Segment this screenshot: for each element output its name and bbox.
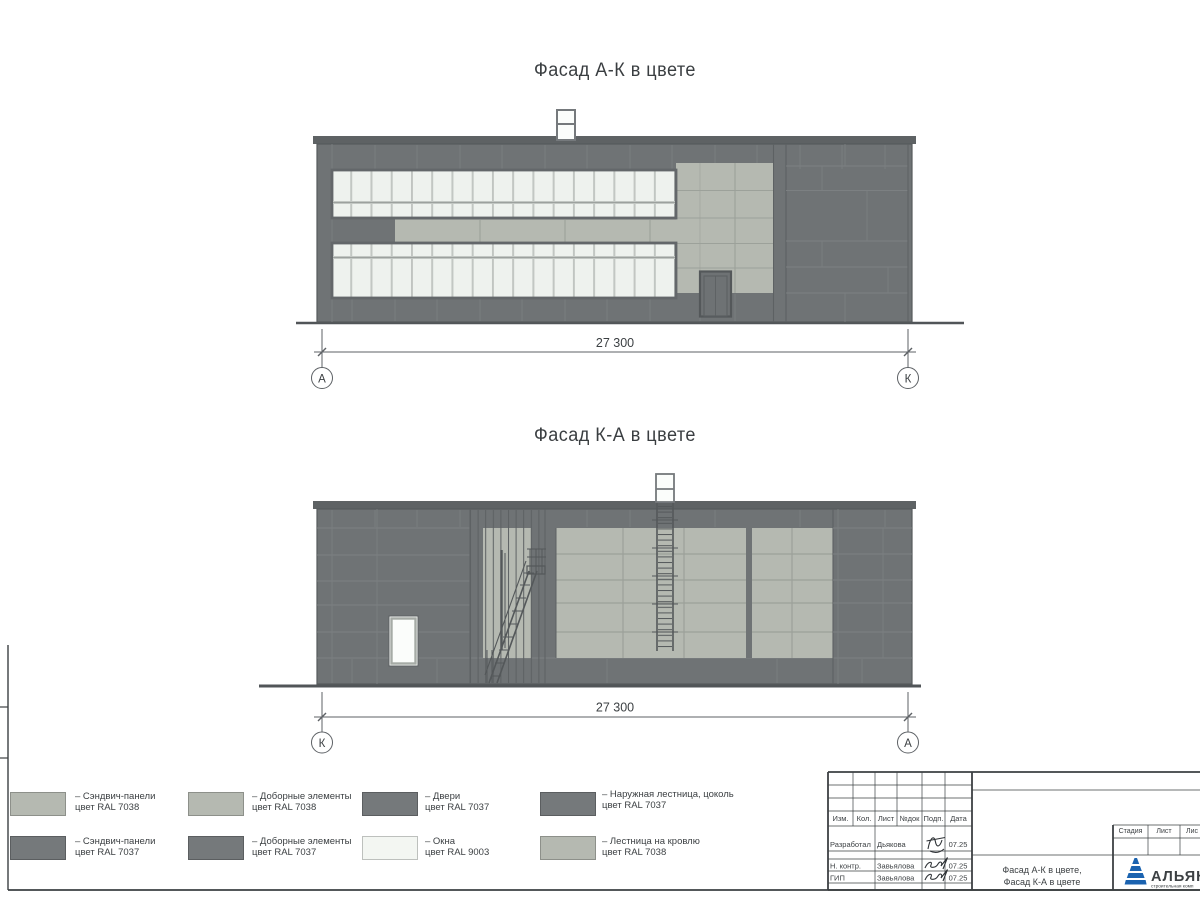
legend-swatch	[540, 792, 596, 816]
sheets-header: Лис	[1186, 828, 1199, 835]
roof-hatch	[557, 110, 575, 140]
doc-name-line2: Фасад К-А в цвете	[1004, 877, 1081, 887]
legend-label: – Сэндвич-панели цвет RAL 7037	[75, 837, 155, 858]
parapet-cap	[313, 136, 916, 144]
dimension-value: 27 300	[596, 336, 634, 350]
doc-name: Фасад А-К в цвете, Фасад К-А в цвете	[1002, 865, 1081, 887]
col-ndok: №док	[900, 814, 921, 823]
legend-line1: – Окна	[425, 837, 489, 848]
legend-line1: – Сэндвич-панели	[75, 837, 155, 848]
axis-letter-left: К	[319, 738, 326, 750]
legend-label: – Окна цвет RAL 9003	[425, 837, 489, 858]
legend-label: – Сэндвич-панели цвет RAL 7038	[75, 792, 155, 813]
row-role: Н. контр.	[830, 862, 861, 871]
logo-pyramid-icon	[1125, 858, 1147, 885]
dimension-value: 27 300	[596, 701, 634, 715]
drawing-sheet: Фасад А-К в цвете	[0, 0, 1200, 900]
legend-swatch	[188, 792, 244, 816]
axis-letter-left: А	[318, 374, 326, 386]
parapet-cap	[313, 501, 916, 509]
legend-line1: – Двери	[425, 792, 489, 803]
small-window	[389, 616, 418, 666]
legend-swatch	[362, 792, 418, 816]
legend-line2: цвет RAL 7037	[252, 848, 351, 859]
legend-label: – Лестница на кровлю цвет RAL 7038	[602, 837, 700, 858]
facade-ak-title: Фасад А-К в цвете	[378, 60, 853, 82]
row-date: 07.25	[949, 862, 968, 871]
light-trim-stripe	[395, 220, 676, 243]
facade-ka-drawing: 27 300 К А	[240, 450, 980, 760]
axis-letter-right: К	[905, 374, 912, 386]
legend-line2: цвет RAL 9003	[425, 848, 489, 859]
row-role: ГИП	[830, 874, 845, 883]
sheet-header: Лист	[1156, 828, 1172, 835]
row-name: Дьякова	[877, 840, 906, 849]
legend-line2: цвет RAL 7038	[602, 848, 700, 859]
legend-line1: – Доборные элементы	[252, 837, 351, 848]
legend-swatch	[10, 792, 66, 816]
company-name: АЛЬЯНС	[1151, 869, 1200, 885]
lower-window-band	[332, 243, 676, 298]
legend-line1: – Доборные элементы	[252, 792, 351, 803]
company-logo: АЛЬЯНС строительная комп	[1125, 858, 1200, 890]
company-subtitle: строительная комп	[1151, 885, 1194, 890]
central-light-panels	[556, 509, 833, 684]
stage-header: Стадия	[1119, 828, 1143, 835]
doc-name-line1: Фасад А-К в цвете,	[1002, 865, 1081, 875]
legend-line1: – Лестница на кровлю	[602, 837, 700, 848]
row-role: Разработал	[830, 840, 871, 849]
legend-swatch	[188, 836, 244, 860]
legend-label: – Доборные элементы цвет RAL 7038	[252, 792, 351, 813]
legend-swatch	[10, 836, 66, 860]
facade-ka-title: Фасад К-А в цвете	[378, 425, 853, 447]
col-kol: Кол.	[857, 814, 872, 823]
axis-letter-right: А	[904, 738, 912, 750]
entrance-door	[700, 272, 731, 317]
titleblock-rows: Разработал Дьякова 07.25 Н. контр. Завья…	[830, 840, 967, 883]
legend-label: – Двери цвет RAL 7037	[425, 792, 489, 813]
row-date: 07.25	[949, 874, 968, 883]
legend-line1: – Сэндвич-панели	[75, 792, 155, 803]
stair-zone	[470, 509, 545, 684]
legend-swatch	[540, 836, 596, 860]
stage-headers: Стадия Лист Лис	[1119, 828, 1199, 835]
row-name: Завьялова	[877, 862, 915, 871]
legend-label: – Наружная лестница, цоколь цвет RAL 703…	[602, 790, 734, 811]
facade-ak-drawing: 27 300 А К	[240, 100, 980, 395]
title-block: Изм. Кол. Лист №док Подп. Дата Разработа…	[820, 763, 1200, 900]
legend-line2: цвет RAL 7037	[602, 801, 734, 812]
legend-line2: цвет RAL 7037	[425, 803, 489, 814]
signature-mark	[927, 838, 946, 853]
legend-line2: цвет RAL 7037	[75, 848, 155, 859]
row-name: Завьялова	[877, 874, 915, 883]
legend-line2: цвет RAL 7038	[75, 803, 155, 814]
legend-swatch	[362, 836, 418, 860]
upper-window-band	[332, 170, 676, 218]
legend-line1: – Наружная лестница, цоколь	[602, 790, 734, 801]
legend-line2: цвет RAL 7038	[252, 803, 351, 814]
col-data: Дата	[950, 814, 967, 823]
col-podp: Подп.	[924, 814, 944, 823]
row-date: 07.25	[949, 840, 968, 849]
col-list: Лист	[878, 814, 895, 823]
col-izm: Изм.	[832, 814, 848, 823]
legend-label: – Доборные элементы цвет RAL 7037	[252, 837, 351, 858]
